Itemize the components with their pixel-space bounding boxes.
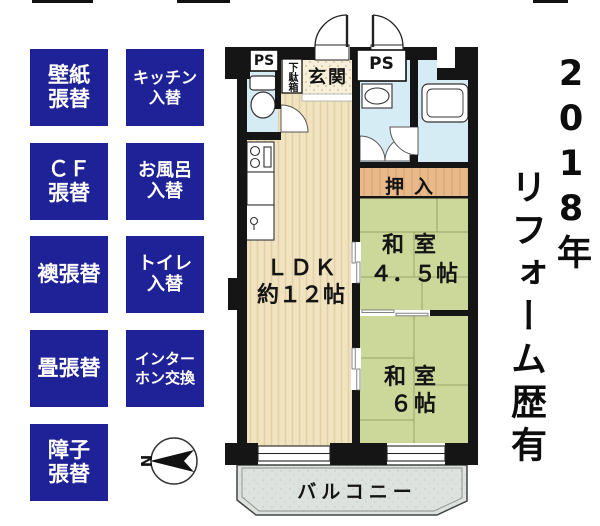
border-remnant <box>533 0 568 3</box>
badge-line: 入替 <box>149 88 181 107</box>
badge-line: 張替 <box>48 88 90 111</box>
badge-line: ホン交換 <box>135 369 195 388</box>
ps1-label: PS <box>250 51 278 71</box>
getabako-label: 下駄箱 <box>286 62 296 92</box>
wall-notch <box>437 47 455 68</box>
badge-tatami: 畳張替 <box>30 330 108 407</box>
badge-line: ＣＦ <box>48 158 90 181</box>
badge-cf: ＣＦ 張替 <box>30 143 108 220</box>
genkan-step <box>302 94 355 101</box>
ldk-size-label: 約１２帖 <box>242 277 360 309</box>
renovation-year-vertical-text: 2018年 <box>546 54 597 274</box>
badge-line: 入替 <box>147 182 183 203</box>
badge-fusuma: 襖張替 <box>30 236 108 313</box>
badge-line: 張替 <box>48 463 90 486</box>
oshiire-label: 押入 <box>360 172 468 199</box>
badge-line: 畳張替 <box>38 357 101 380</box>
compass-north-label: N <box>138 455 156 468</box>
balcony-label: バルコニー <box>287 477 427 504</box>
bathtub-icon <box>422 84 468 122</box>
kitchen-counter <box>247 172 274 205</box>
floorplan-page: N 壁紙 張替 キッチン 入替 ＣＦ 張替 お風呂 入替 襖張替 トイレ 入替 … <box>0 0 600 526</box>
badge-line: インター <box>135 350 195 369</box>
badge-line: 壁紙 <box>48 64 90 87</box>
renovation-note-vertical-text: リフォーム歴有 <box>499 168 551 469</box>
badge-kitchen: キッチン 入替 <box>126 49 204 126</box>
badge-line: 襖張替 <box>38 263 101 286</box>
badge-line: キッチン <box>133 68 197 87</box>
washitsu45-name-label: 和室 <box>360 227 468 259</box>
border-remnant <box>177 0 230 3</box>
border-remnant <box>32 0 93 3</box>
kitchen-sink-icon <box>246 205 274 240</box>
washbasin-icon <box>362 84 392 108</box>
fusuma-divider <box>360 310 430 316</box>
badge-shoji: 障子 張替 <box>30 424 108 501</box>
washitsu6-size-label: ６帖 <box>360 386 468 418</box>
badge-line: 障子 <box>48 439 90 462</box>
ps2-label: PS <box>357 54 406 74</box>
badge-line: 入替 <box>147 275 183 296</box>
toilet-icon <box>250 76 276 118</box>
badge-line: お風呂 <box>138 161 192 182</box>
compass-icon: N <box>138 438 197 484</box>
badge-line: トイレ <box>138 254 192 275</box>
badge-wallpaper: 壁紙 張替 <box>30 49 108 126</box>
badge-toilet: トイレ 入替 <box>126 236 204 313</box>
washitsu45-size-label: ４．５帖 <box>358 256 470 288</box>
genkan-label: 玄関 <box>303 63 353 89</box>
kitchen-stove-icon <box>247 142 274 172</box>
badge-bath: お風呂 入替 <box>126 143 204 220</box>
badge-line: 張替 <box>48 182 90 205</box>
badge-intercom: インター ホン交換 <box>126 330 204 407</box>
